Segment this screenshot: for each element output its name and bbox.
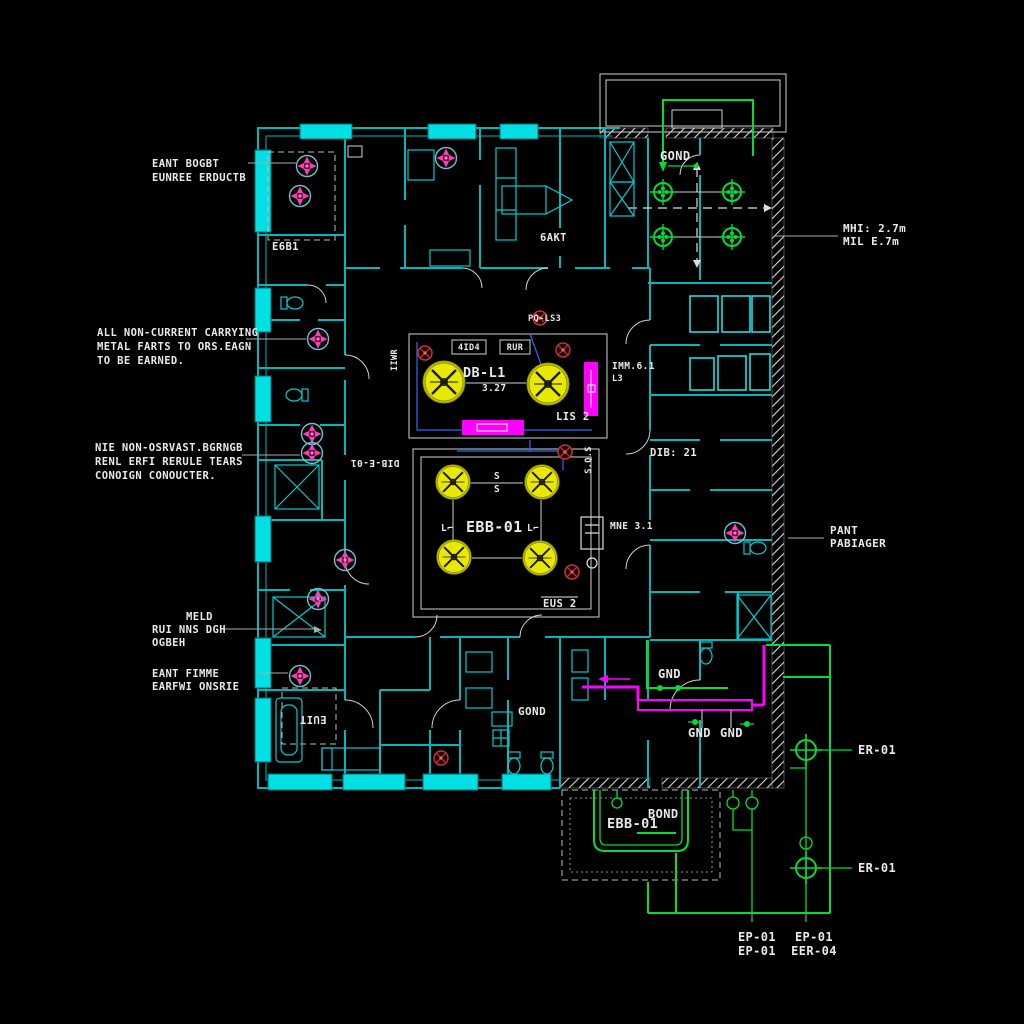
label-pq-ls3: PQ-LS3 (528, 314, 561, 324)
earth-pit-icon (650, 224, 676, 250)
callout-note7-line1: PANT (830, 524, 858, 537)
detector-icon (556, 343, 570, 357)
callout-note6-line1: MHI: 2.7m (843, 222, 906, 235)
label-l-right: L⌐ (527, 523, 539, 534)
callout-note3-line3: CONOIGN CONOUCTER. (95, 470, 216, 482)
fan-symbol-icon (290, 186, 311, 207)
ceiling-light-icon (438, 541, 471, 574)
label-box-rur: RUR (507, 343, 524, 353)
building-extensions (562, 74, 786, 880)
fan-symbol-icon (335, 550, 356, 571)
earth-pit-icon (719, 224, 745, 250)
callout-note6-line2: MIL E.7m (843, 235, 899, 248)
detector-icon (418, 346, 432, 360)
label-ep-a1: EP-01 (738, 930, 776, 944)
fan-symbol-icon (302, 424, 323, 445)
label-gond-top: GOND (660, 149, 691, 163)
fan-symbols (290, 148, 746, 687)
label-db-l1: DB-L1 (463, 365, 506, 381)
label-ep-a2: EP-01 (738, 944, 776, 958)
label-bond: BOND (648, 807, 679, 821)
detector-icon (558, 445, 572, 459)
fan-symbol-icon (725, 523, 746, 544)
detector-icon (434, 751, 448, 765)
earth-pit-icon (650, 179, 676, 205)
label-s-mid: S (494, 484, 500, 495)
earth-pit-icon (719, 179, 745, 205)
label-er01-bottom: ER-01 (858, 861, 896, 875)
fan-symbol-icon (302, 443, 323, 464)
label-dib-e01: DIB-E-01 (351, 457, 400, 468)
callout-note7-line2: PABIAGER (830, 537, 886, 550)
label-euit: EUIT (300, 713, 327, 725)
callout-note2-line1: ALL NON-CURRENT CARRYING (97, 327, 258, 339)
label-gnd-1: GND (658, 667, 681, 681)
fan-symbol-icon (290, 666, 311, 687)
label-l-left: L⌐ (441, 523, 453, 534)
label-iiwr: IIWR (390, 348, 400, 371)
callout-note3-line2: RENL ERFI RERULE TEARS (95, 456, 243, 468)
ceiling-light-icon (528, 364, 568, 404)
ceiling-light-icon (437, 466, 470, 499)
grounding-network-green (594, 100, 852, 922)
callout-note4-line3: OGBEH (152, 637, 186, 649)
label-ebb01: EBB-01 (466, 518, 523, 536)
label-6akt: 6AKT (540, 232, 567, 244)
callout-note3-line1: NIE NON-OSRVAST.BGRNGB (95, 442, 243, 454)
label-s-top: S (494, 471, 500, 482)
callout-note1-line2: EUNREE ERDUCTB (152, 172, 246, 184)
label-gnd-3: GND (720, 726, 743, 740)
label-imm61: IMM.6.1 (612, 361, 655, 372)
fan-symbol-icon (308, 329, 329, 350)
label-mne31: MNE 3.1 (610, 521, 653, 532)
callout-note2-line2: METAL FARTS TO ORS.EAGN (97, 341, 252, 353)
label-eus2: EUS 2 (543, 598, 577, 610)
callout-note5-line2: EARFWI ONSRIE (152, 681, 239, 693)
callout-note2-line3: TO BE EARNED. (97, 355, 184, 367)
label-er01-top: ER-01 (858, 743, 896, 757)
ceiling-light-icon (524, 542, 557, 575)
label-e6b1: E6B1 (272, 241, 299, 253)
label-l3: L3 (612, 374, 623, 384)
callout-note1-line1: EANT BOGBT (152, 158, 219, 170)
label-db-num: 3.27 (482, 383, 506, 394)
label-box-4id4: 4ID4 (458, 343, 480, 353)
fan-symbol-icon (436, 148, 457, 169)
earth-rod-icon (790, 852, 822, 884)
detector-icon (565, 565, 579, 579)
label-dib21: DIB: 21 (650, 447, 697, 459)
callout-note5-line1: EANT FIMME (152, 668, 219, 680)
label-ep-b2: EER-04 (791, 944, 837, 958)
fan-symbol-icon (308, 589, 329, 610)
label-ep-b1: EP-01 (795, 930, 833, 944)
label-sqs: S.Q.S (584, 446, 594, 474)
label-gond-bottom: GOND (518, 705, 546, 718)
ceiling-light-icon (526, 466, 559, 499)
callout-note4-line1: MELD (186, 611, 213, 623)
label-lis2: LIS 2 (556, 411, 590, 423)
ceiling-light-icon (424, 362, 464, 402)
floor-plan-svg: EANT BOGBT EUNREE ERDUCTB ALL NON-CURREN… (0, 0, 1024, 1024)
label-gnd-2: GND (688, 726, 711, 740)
callout-note4-line2: RUI NNS DGH (152, 624, 226, 636)
cad-floor-plan-canvas: EANT BOGBT EUNREE ERDUCTB ALL NON-CURREN… (0, 0, 1024, 1024)
fan-symbol-icon (297, 156, 318, 177)
